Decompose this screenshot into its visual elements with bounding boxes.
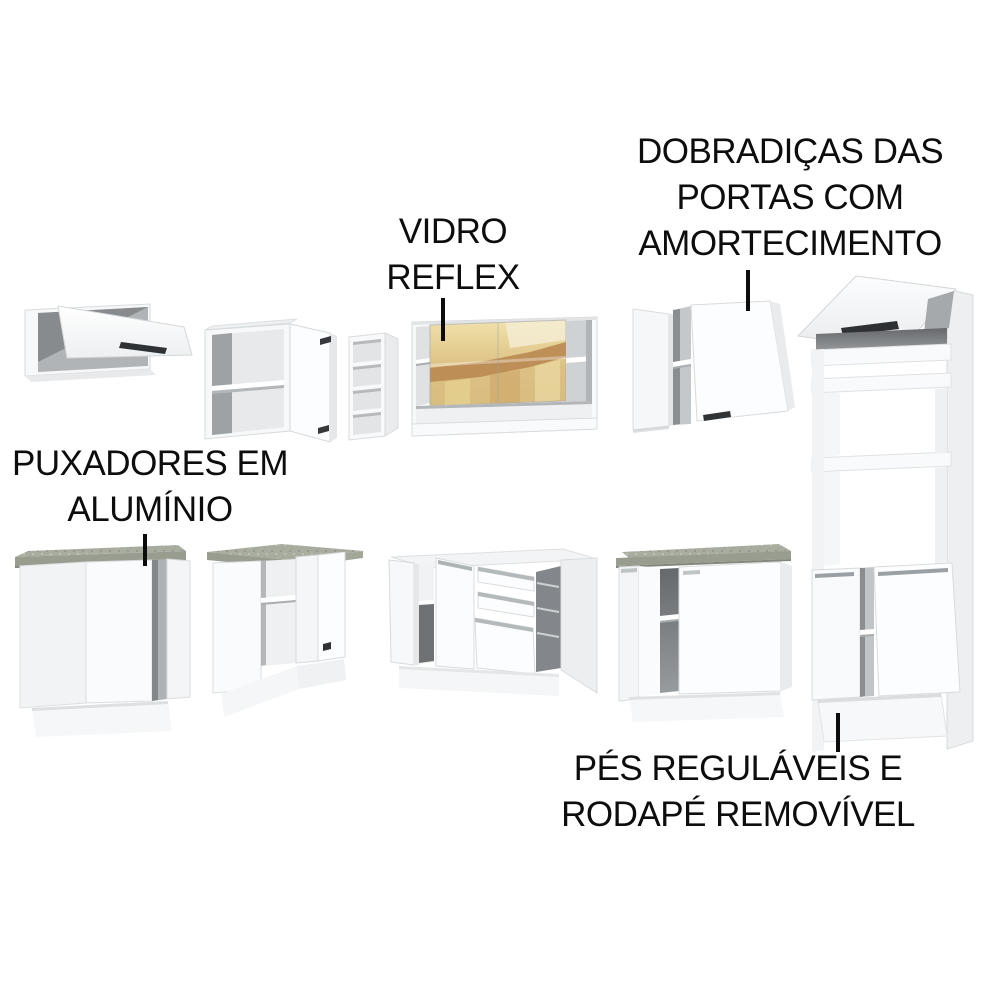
- annotation-line-text: PÉS REGULÁVEIS E: [548, 746, 928, 792]
- annotation-line-text: AMORTECIMENTO: [608, 221, 972, 267]
- annotation-line-text: DOBRADIÇAS DAS: [608, 129, 972, 175]
- annotation-aluminum-handles: PUXADORES EM ALUMÍNIO: [0, 441, 300, 533]
- lower-right-door: [874, 563, 960, 696]
- base-cabinet-corner-1: [15, 545, 190, 737]
- door-open: [619, 566, 639, 701]
- door-open: [389, 560, 414, 665]
- two-door-base-cabinet: [616, 544, 792, 722]
- annotation-adjustable-feet: PÉS REGULÁVEIS E RODAPÉ REMOVÍVEL: [548, 746, 928, 838]
- shelf: [860, 629, 874, 635]
- shelf: [812, 373, 951, 393]
- two-door-wall-cabinet: [633, 301, 795, 433]
- annotation-line-text: VIDRO: [353, 209, 553, 255]
- door-open: [167, 559, 190, 699]
- base-cabinet-corner-2: [207, 544, 363, 717]
- open-shelf-unit: [349, 333, 398, 440]
- door: [318, 552, 345, 661]
- door-open: [296, 555, 318, 663]
- wall-cabinet-corner: [205, 319, 337, 442]
- annotation-line-text: REFLEX: [353, 255, 553, 301]
- annotation-line-text: RODAPÉ REMOVÍVEL: [548, 792, 928, 838]
- annotation-line-text: ALUMÍNIO: [0, 487, 300, 533]
- door: [436, 558, 474, 669]
- door: [86, 560, 152, 703]
- annotation-line-text: PUXADORES EM: [0, 441, 300, 487]
- side-panel: [561, 558, 597, 693]
- annotation-line-text: PORTAS COM: [608, 175, 972, 221]
- wall-cabinet-flipup: [25, 304, 192, 382]
- tall-oven-cabinet: [798, 276, 973, 752]
- left-door: [633, 309, 669, 430]
- glass-wall-cabinet: [412, 317, 597, 436]
- lower-left-door: [812, 568, 860, 700]
- cabinet-interior: [261, 559, 296, 666]
- door: [679, 562, 781, 694]
- door: [213, 561, 261, 693]
- cabinet-interior: [660, 568, 679, 693]
- annotation-door-hinges: DOBRADIÇAS DAS PORTAS COM AMORTECIMENTO: [608, 129, 972, 267]
- drawer-base-cabinet: [389, 549, 597, 696]
- annotation-reflex-glass: VIDRO REFLEX: [353, 209, 553, 301]
- product-diagram: DOBRADIÇAS DAS PORTAS COM AMORTECIMENTO …: [0, 0, 1000, 1000]
